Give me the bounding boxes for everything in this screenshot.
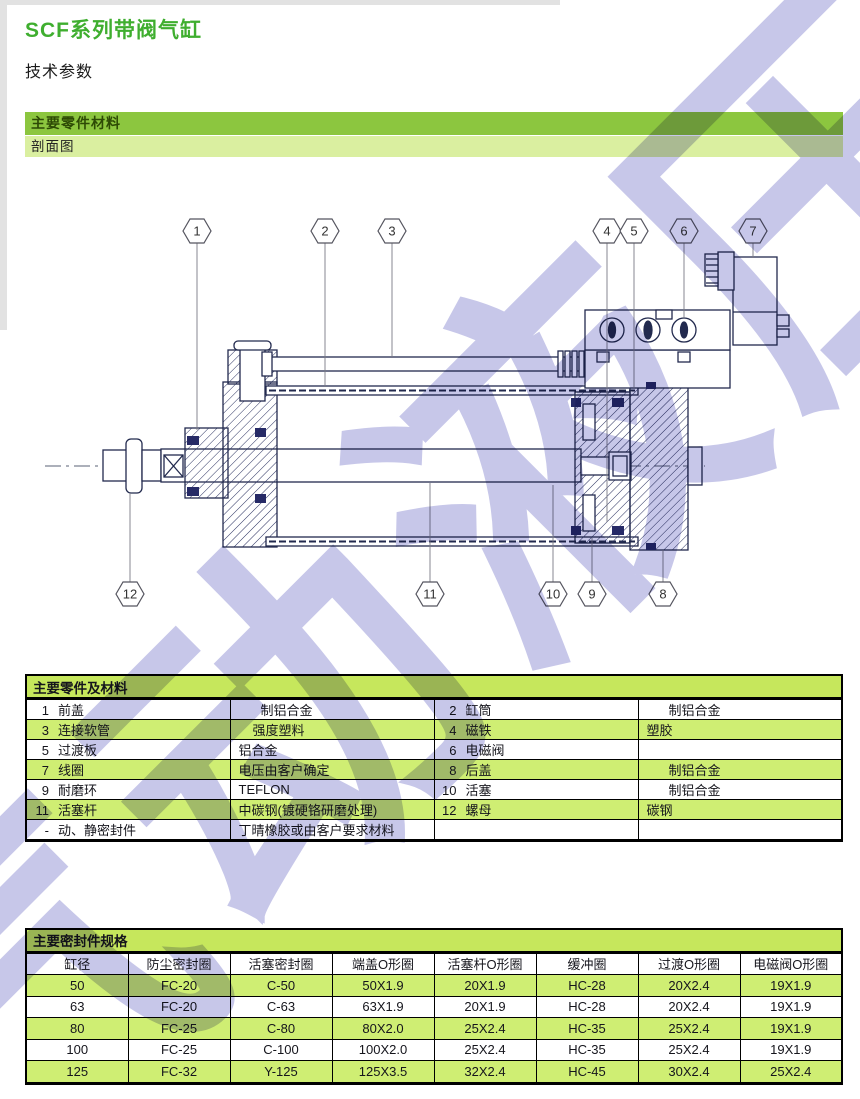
parts-table-title: 主要零件及材料 — [26, 675, 842, 699]
svg-text:12: 12 — [123, 587, 137, 602]
callout-4: 4 — [593, 219, 621, 243]
table-header-row: 缸径防尘密封圈 活塞密封圈端盖O形圈 活塞杆O形圈缓冲圈 过渡O形圈电磁阀O形圈 — [26, 952, 842, 975]
section-banner-section-view: 剖面图 — [25, 136, 843, 157]
callout-2: 2 — [311, 219, 339, 243]
callout-6: 6 — [670, 219, 698, 243]
table-row: 1前盖 制铝合金 2缸筒 制铝合金 — [26, 699, 842, 720]
coil-terminal — [777, 315, 789, 326]
callout-12: 12 — [116, 582, 144, 606]
table-row: 11活塞杆 中碳钢(镀硬铬研磨处理) 12螺母 碳钢 — [26, 800, 842, 820]
svg-text:6: 6 — [680, 224, 687, 239]
svg-text:2: 2 — [321, 224, 328, 239]
svg-text:4: 4 — [603, 224, 610, 239]
callout-11: 11 — [416, 582, 444, 606]
rod-nut — [126, 439, 142, 493]
rod-collar — [142, 450, 161, 481]
seals-table-title: 主要密封件规格 — [26, 929, 842, 952]
svg-text:1: 1 — [193, 224, 200, 239]
table-row: 80FC-25C-8080X2.0 25X2.4HC-3525X2.419X1.… — [26, 1018, 842, 1040]
svg-text:11: 11 — [423, 587, 437, 602]
svg-text:9: 9 — [588, 587, 595, 602]
table-row: 125FC-32Y-125125X3.5 32X2.4HC-4530X2.425… — [26, 1061, 842, 1084]
wear-ring-top — [583, 404, 595, 440]
front-cover — [223, 382, 277, 547]
connector-ribs — [705, 254, 718, 286]
rear-cover — [630, 380, 688, 550]
connecting-hose — [268, 357, 585, 371]
callout-7: 7 — [739, 219, 767, 243]
svg-text:10: 10 — [546, 587, 560, 602]
callout-8: 8 — [649, 582, 677, 606]
table-row: -动、静密封件 丁晴橡胶或由客户要求材料 — [26, 820, 842, 841]
table-row: 9耐磨环 TEFLON 10活塞 制铝合金 — [26, 780, 842, 800]
svg-text:7: 7 — [749, 224, 756, 239]
table-row: 3连接软管 强度塑料 4磁铁 塑胶 — [26, 720, 842, 740]
section-banner-materials: 主要零件材料 — [25, 112, 843, 135]
port-tube — [240, 346, 265, 401]
page-title: SCF系列带阀气缸 — [25, 14, 202, 44]
callout-3: 3 — [378, 219, 406, 243]
table-row: 50FC-20C-5050X1.9 20X1.9HC-2820X2.419X1.… — [26, 975, 842, 997]
page-subtitle: 技术参数 — [25, 58, 93, 82]
hose-left-fitting — [262, 352, 272, 376]
table-row: 7线圈 电压由客户确定 8后盖 制铝合金 — [26, 760, 842, 780]
svg-text:8: 8 — [659, 587, 666, 602]
scan-edge-top — [0, 0, 560, 5]
callout-10: 10 — [539, 582, 567, 606]
table-row: 5过渡板 铝合金 6电磁阀 — [26, 740, 842, 760]
piston-screw-shaft — [581, 457, 609, 475]
coil-connector — [718, 252, 734, 290]
datasheet-page: SCF系列带阀气缸 技术参数 主要零件材料 剖面图 — [0, 0, 860, 1099]
callout-1: 1 — [183, 219, 211, 243]
callout-9: 9 — [578, 582, 606, 606]
svg-text:5: 5 — [630, 224, 637, 239]
rear-cover-boss — [688, 447, 702, 485]
coil — [733, 257, 777, 345]
port-cap — [234, 341, 271, 350]
seal-specs-table: 主要密封件规格 缸径防尘密封圈 活塞密封圈端盖O形圈 活塞杆O形圈缓冲圈 过渡O… — [25, 928, 843, 1085]
callout-5: 5 — [620, 219, 648, 243]
svg-text:3: 3 — [388, 224, 395, 239]
table-row: 63FC-20C-6363X1.9 20X1.9HC-2820X2.419X1.… — [26, 996, 842, 1018]
parts-materials-table: 主要零件及材料 1前盖 制铝合金 2缸筒 制铝合金 3连接软管 强度塑料 4磁铁… — [25, 674, 843, 842]
section-view-diagram: 1 2 3 4 5 6 7 12 11 10 9 8 — [0, 200, 860, 640]
table-row: 100FC-25C-100100X2.0 25X2.4HC-3525X2.419… — [26, 1039, 842, 1061]
rod-thread — [103, 450, 129, 481]
coil-terminal — [777, 329, 789, 337]
wear-ring-bottom — [583, 495, 595, 531]
